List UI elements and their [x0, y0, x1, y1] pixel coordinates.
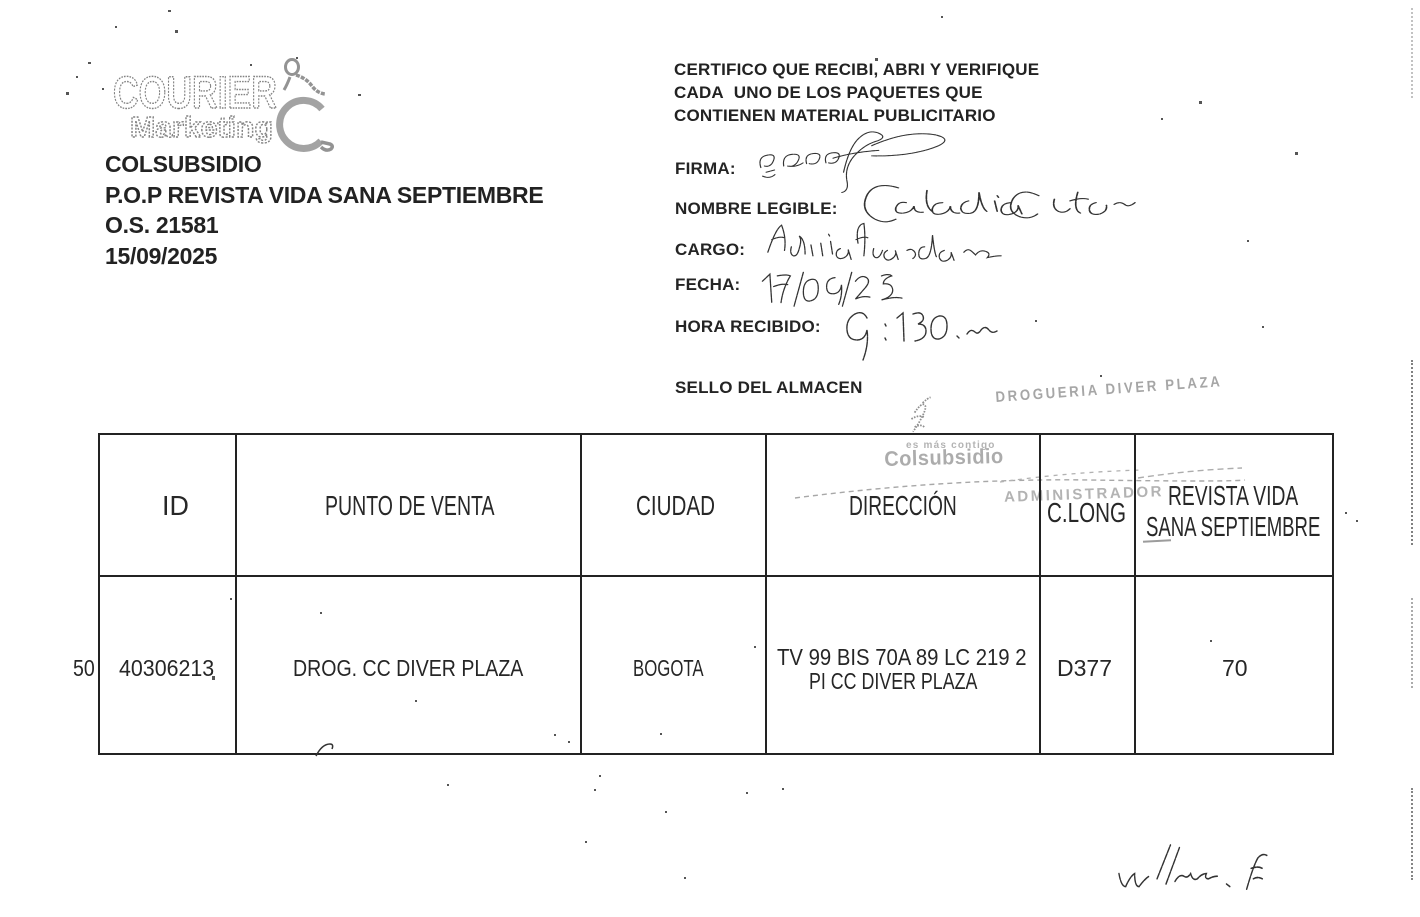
svg-text:Marketing: Marketing	[130, 112, 273, 144]
svg-text:COURIER: COURIER	[113, 67, 277, 118]
